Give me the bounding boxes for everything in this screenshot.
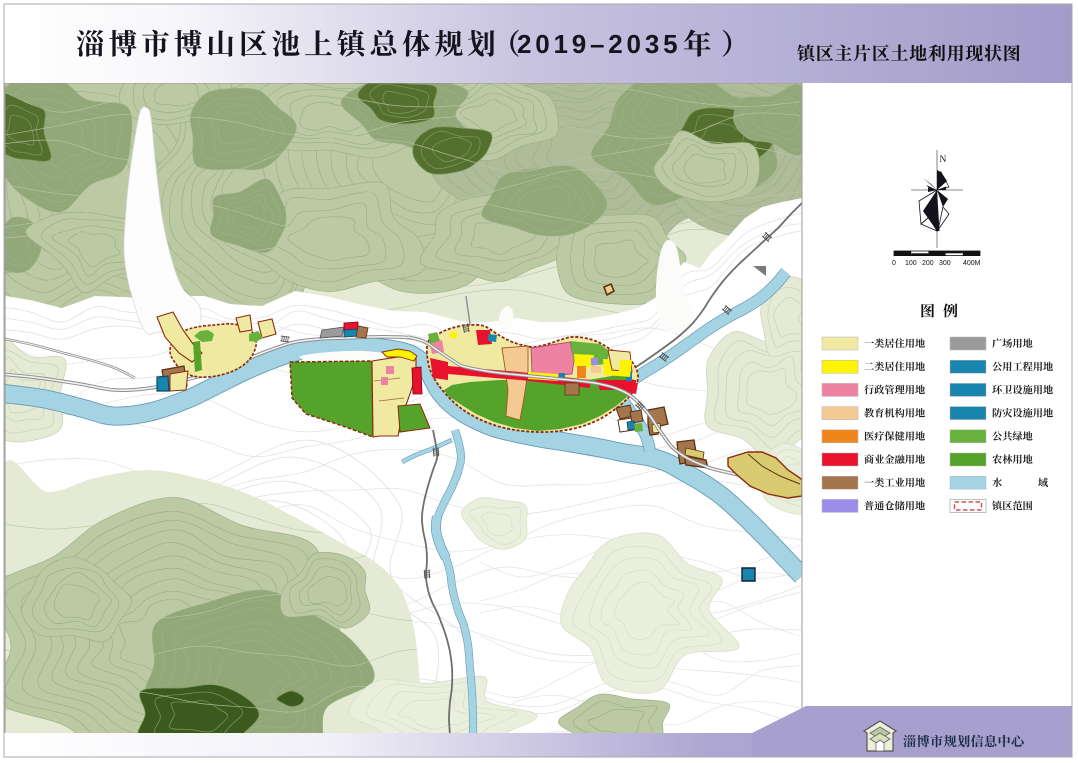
svg-text:300: 300	[939, 260, 951, 267]
svg-text:400M: 400M	[963, 260, 981, 267]
svg-text:0: 0	[892, 260, 896, 267]
svg-text:N: N	[940, 155, 947, 165]
svg-text:200: 200	[922, 260, 934, 267]
svg-text:100: 100	[905, 260, 917, 267]
svg-text:2019–2035: 2019–2035	[517, 29, 681, 59]
